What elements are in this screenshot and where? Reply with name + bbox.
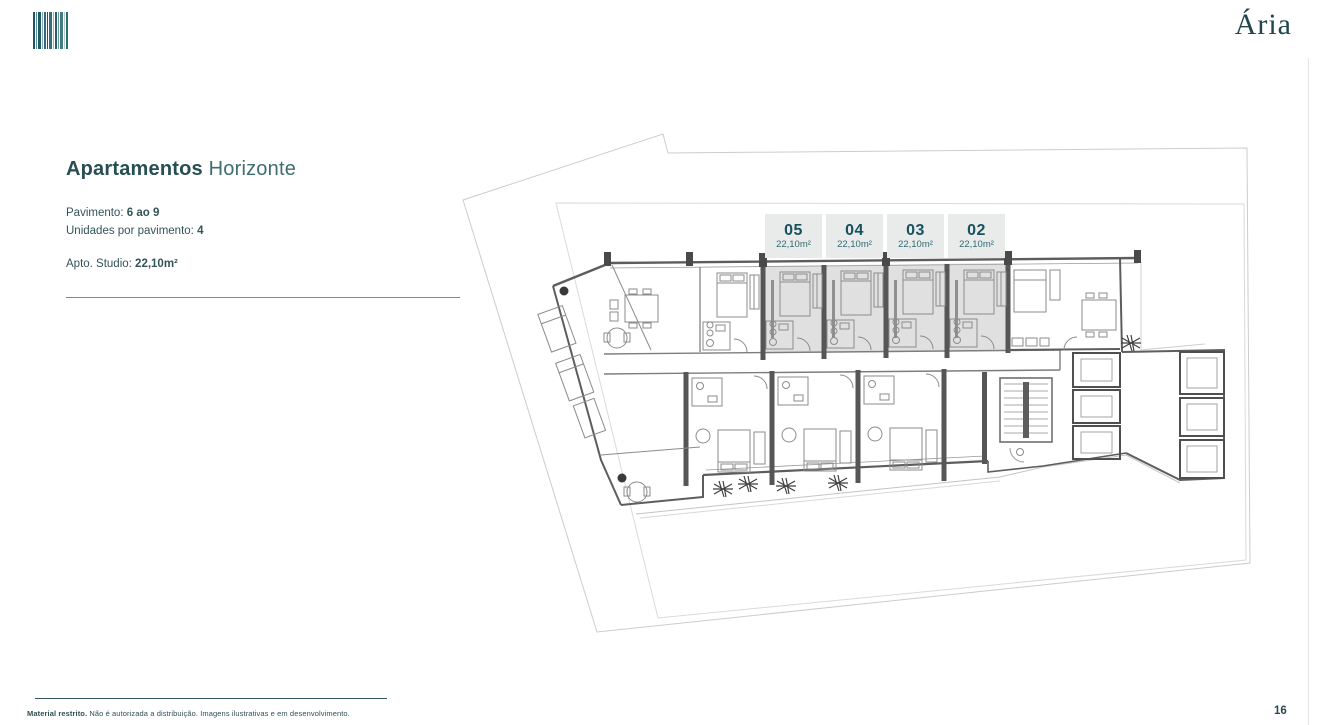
unit-label-03: 03 22,10m² bbox=[887, 214, 944, 258]
unit-label-04: 04 22,10m² bbox=[826, 214, 883, 258]
footer-restricted-label: Material restrito. bbox=[27, 709, 87, 718]
stairs bbox=[1000, 378, 1052, 462]
unit-area: 22,10m² bbox=[959, 239, 994, 251]
unit-number: 03 bbox=[906, 222, 925, 239]
unit-number: 05 bbox=[784, 222, 803, 239]
unit-area: 22,10m² bbox=[776, 239, 811, 251]
round-column bbox=[618, 474, 627, 483]
footer-disclaimer-text: Não é autorizada a distribuição. Imagens… bbox=[87, 709, 350, 718]
round-column bbox=[560, 287, 569, 296]
page-edge-line bbox=[1308, 58, 1309, 725]
elevator-core bbox=[1073, 353, 1120, 459]
page-number: 16 bbox=[1274, 705, 1287, 717]
unit-label-02: 02 22,10m² bbox=[948, 214, 1005, 258]
unit-number: 04 bbox=[845, 222, 864, 239]
apartment-01 bbox=[1008, 270, 1120, 350]
floor-plan bbox=[0, 0, 1320, 725]
unit-number: 02 bbox=[967, 222, 986, 239]
corner-apartment bbox=[610, 265, 658, 350]
unit-area: 22,10m² bbox=[837, 239, 872, 251]
unit-area: 22,10m² bbox=[898, 239, 933, 251]
footer-disclaimer: Material restrito. Não é autorizada a di… bbox=[27, 709, 350, 718]
unit-label-05: 05 22,10m² bbox=[765, 214, 822, 258]
service-shafts bbox=[1180, 352, 1224, 478]
palm-icons bbox=[713, 335, 1141, 497]
footer-divider bbox=[35, 698, 387, 699]
corridor bbox=[604, 350, 1060, 374]
studio-units-bottom bbox=[692, 374, 939, 472]
